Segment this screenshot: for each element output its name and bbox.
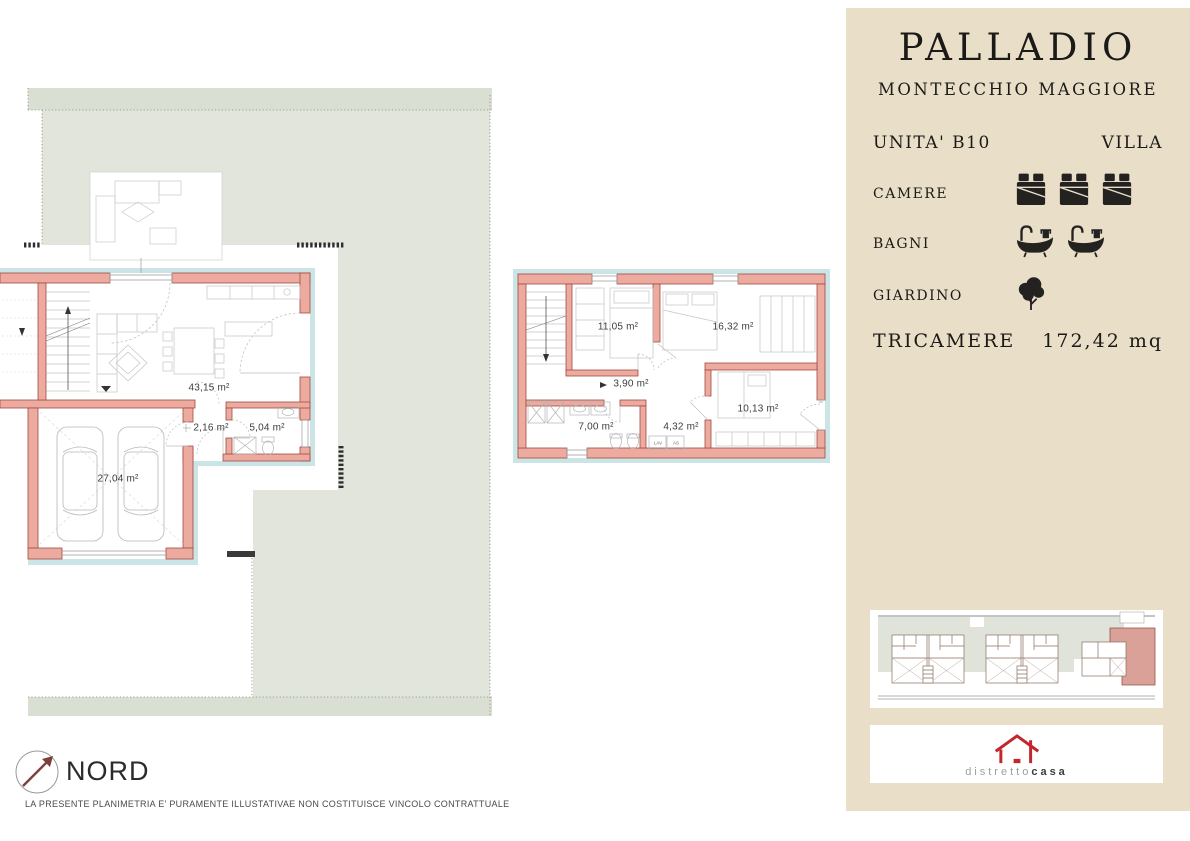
first-floor-plan: [513, 269, 830, 463]
unit-label: UNITA' B10: [873, 133, 991, 153]
room-area-label: 10,13 m²: [737, 404, 778, 415]
room-area-label: 16,32 m²: [712, 322, 753, 333]
siteplan-building: [986, 635, 1058, 683]
unit-row: UNITA' B10 VILLA: [873, 133, 1163, 153]
dimension-mark: [183, 424, 191, 432]
patio: [90, 172, 222, 260]
north-label: NORD: [66, 756, 150, 787]
north-compass-icon: [16, 751, 58, 793]
tv-marker: [101, 386, 111, 392]
summary-row: TRICAMERE 172,42 mq: [873, 330, 1163, 352]
room-area-label: 5,04 m²: [249, 423, 284, 434]
staircase: [526, 292, 566, 364]
room-area-label: 3,90 m²: [613, 379, 648, 390]
staircase: [46, 292, 90, 391]
room-area-label: 27,04 m²: [97, 474, 138, 485]
siteplan-thumbnail: [870, 610, 1163, 708]
disclaimer-text: LA PRESENTE PLANIMETRIA E' PURAMENTE ILL…: [25, 799, 509, 809]
fixture-label-as: AS: [673, 441, 679, 446]
siteplan-building: [1082, 642, 1126, 676]
room-area-label: 2,16 m²: [193, 423, 228, 434]
info-panel: PALLADIO MONTECCHIO MAGGIORE UNITA' B10 …: [846, 8, 1190, 811]
bed-icon: [1016, 173, 1046, 206]
brand-name-prefix: distretto: [965, 766, 1031, 778]
gate-marker: [227, 551, 255, 557]
room-area-label: 43,15 m²: [188, 383, 229, 394]
brand-logo: distrettocasa: [870, 725, 1163, 783]
summary-area-value: 172,42 mq: [1042, 330, 1163, 352]
room-area-label: 4,32 m²: [663, 422, 698, 433]
project-title: PALLADIO: [846, 26, 1190, 69]
bagni-icons: [1016, 222, 1118, 258]
unit-type-label: VILLA: [1102, 133, 1163, 153]
floor-plan-drawing: [0, 0, 840, 841]
feature-label-camere: CAMERE: [873, 186, 948, 202]
bed-icon: [1102, 173, 1132, 206]
bathtub-icon: [1016, 222, 1054, 258]
brand-logo-text: distrettocasa: [965, 766, 1068, 778]
room-area-label: 11,05 m²: [598, 322, 638, 333]
house-logo-icon: [989, 730, 1045, 764]
flyer-page: 43,15 m² 2,16 m² 5,04 m² 27,04 m² 11,05 …: [0, 0, 1190, 841]
fixture-label-lav: LAV: [654, 441, 662, 446]
project-location: MONTECCHIO MAGGIORE: [846, 80, 1190, 99]
room-area-label: 7,00 m²: [578, 422, 613, 433]
brand-name-suffix: casa: [1031, 766, 1067, 778]
bed-icon: [1059, 173, 1089, 206]
feature-label-bagni: BAGNI: [873, 236, 930, 252]
feature-label-giardino: GIARDINO: [873, 288, 963, 304]
camere-icons: [1016, 173, 1145, 206]
bathtub-icon: [1067, 222, 1105, 258]
living-furniture: [97, 286, 300, 392]
summary-type-label: TRICAMERE: [873, 330, 1015, 352]
cut-area-lines: [2, 300, 36, 372]
direction-arrow: [600, 382, 607, 388]
giardino-icons: [1016, 276, 1059, 314]
tree-icon: [1016, 276, 1046, 314]
siteplan-building: [892, 635, 964, 683]
